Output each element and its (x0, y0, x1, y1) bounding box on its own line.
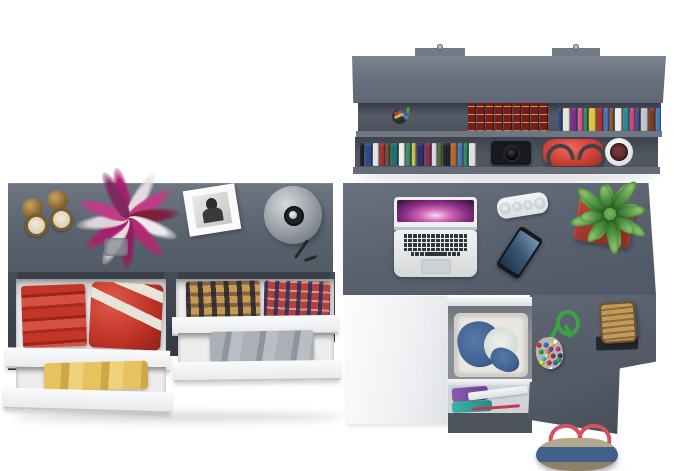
keyboard-key (413, 239, 417, 243)
book-spine (571, 108, 577, 131)
keyboard-key (431, 248, 435, 252)
bookshelf-bottom-edge (353, 167, 660, 174)
bookshelf-mount-tab (552, 48, 600, 57)
keyboard-key (441, 248, 445, 252)
book-spine (451, 143, 457, 166)
drawer-front (174, 360, 340, 382)
keyboard-key (418, 234, 422, 238)
keyboard-key (445, 248, 449, 252)
bookshelf-mount-tab (415, 48, 465, 57)
denim-tote-bag (536, 424, 622, 471)
bead (555, 357, 561, 363)
book-row-lower (360, 139, 476, 166)
keyboard-key (404, 239, 408, 243)
potpourri-bowl (605, 138, 633, 166)
wicker-basket (599, 301, 638, 344)
keyboard-key (454, 234, 458, 238)
keyboard-key (459, 234, 463, 238)
keyboard-key (431, 239, 435, 243)
bead (538, 349, 544, 355)
book-spine (636, 108, 640, 131)
book-row-upper (558, 103, 661, 131)
encyclopedia-set (468, 103, 548, 131)
keyboard-key (404, 248, 408, 252)
open-drawer-plaid (176, 279, 334, 319)
keyboard-key (420, 252, 424, 256)
speaker-driver (533, 196, 547, 210)
photo-frame (183, 183, 242, 237)
keyboard-key (422, 248, 426, 252)
bead (544, 353, 550, 359)
keyboard-key (450, 243, 454, 247)
keyboard-key (448, 252, 452, 256)
book-spine (417, 143, 424, 166)
plaid-shirt-red (264, 280, 331, 318)
book-spine (649, 108, 655, 131)
speaker-driver (498, 201, 512, 215)
book-spine (584, 108, 588, 131)
book-spine (464, 143, 468, 166)
book-spine (386, 143, 390, 166)
keyboard-key (436, 248, 440, 252)
laptop (394, 197, 477, 277)
bead (550, 353, 556, 359)
book-spine (563, 108, 570, 131)
keyboard-key (408, 243, 412, 247)
keyboard-row (402, 248, 469, 252)
keyboard-key (427, 234, 431, 238)
gray-clothes (210, 330, 315, 362)
laptop-trackpad (421, 259, 451, 274)
keyboard-key (445, 239, 449, 243)
drawer-front (4, 388, 172, 414)
book-spine (597, 108, 603, 131)
book-spine (469, 143, 476, 166)
book-spine (360, 143, 364, 166)
keyboard-key (415, 252, 419, 256)
keyboard-key (459, 248, 463, 252)
keyboard-key (418, 248, 422, 252)
book-spine (589, 108, 596, 131)
book-spine (641, 108, 648, 131)
encyclopedia-spine (468, 103, 476, 131)
keyboard-key (427, 248, 431, 252)
book-spine (615, 108, 622, 131)
keyboard-key (427, 243, 431, 247)
keyboard-key (459, 243, 463, 247)
book-spine (443, 143, 450, 166)
encyclopedia-spine (540, 103, 548, 131)
book-spine (380, 143, 385, 166)
book-spine (425, 143, 431, 166)
encyclopedia-spine (522, 103, 530, 131)
encyclopedia-spine (531, 103, 539, 131)
keyboard-key (436, 234, 440, 238)
keyboard-key (452, 252, 456, 256)
drawer-rail (448, 297, 532, 306)
keyboard-row (402, 234, 469, 238)
book-spine (365, 143, 372, 166)
encyclopedia-spine (504, 103, 512, 131)
keyboard-key (436, 239, 440, 243)
keyboard-key (413, 234, 417, 238)
succulent-plant (568, 178, 652, 244)
encyclopedia-spine (477, 103, 485, 131)
potpourri (610, 143, 628, 161)
bead (539, 360, 545, 366)
keyboard-key (450, 239, 454, 243)
keyboard-key (404, 234, 408, 238)
yellow-clothes (44, 361, 149, 392)
lamp-finial (289, 211, 297, 219)
keyboard-key (436, 243, 440, 247)
book-spine (610, 108, 614, 131)
red-handbag (543, 139, 603, 167)
keyboard-row (402, 252, 469, 256)
keyboard-key (408, 234, 412, 238)
keyboard-key (445, 234, 449, 238)
portrait-shoulders (202, 206, 224, 223)
book-spine (458, 143, 463, 166)
screw-icon (573, 44, 579, 50)
book-spine (406, 143, 411, 166)
keyboard-key (464, 248, 468, 252)
keyboard-key (464, 239, 468, 243)
keyboard-key (445, 243, 449, 247)
dresser-shadow (12, 412, 342, 422)
keyboard-key (408, 239, 412, 243)
keyboard-key (441, 239, 445, 243)
keyboard-key (408, 248, 412, 252)
laptop-base (394, 230, 477, 277)
furniture-render-scene: Top-down 3D render of a dark gray home o… (0, 0, 700, 471)
book-spine (623, 108, 629, 131)
book-spine (412, 143, 416, 166)
laptop-lid (394, 197, 477, 227)
plaid-shirt-tan (186, 280, 261, 318)
bookshelf-upper-shelf (358, 103, 661, 131)
book-spine (432, 143, 437, 166)
book-spine (438, 143, 442, 166)
keyboard-key (441, 234, 445, 238)
laptop-screen (397, 200, 474, 222)
keyboard-key (454, 243, 458, 247)
under-desk-drawer (448, 297, 532, 379)
speaker-driver (522, 199, 533, 210)
keyboard-key (422, 234, 426, 238)
portrait-photo (192, 191, 233, 228)
tote-body (536, 438, 618, 471)
flower-bouquet (58, 166, 198, 262)
book-spine (578, 108, 583, 131)
camera (491, 141, 531, 165)
book-spine (399, 143, 405, 166)
book-spine (373, 143, 379, 166)
book-spine (558, 108, 562, 131)
keyboard-key (454, 248, 458, 252)
red-white-garment (88, 281, 163, 351)
keyboard-key (450, 234, 454, 238)
keyboard-key (459, 239, 463, 243)
red-towels (21, 284, 87, 348)
keyboard-key (418, 243, 422, 247)
book-spine (604, 108, 609, 131)
keyboard-key (422, 243, 426, 247)
keyboard-key (441, 243, 445, 247)
keyboard-key (454, 239, 458, 243)
keyboard-key (431, 234, 435, 238)
bead (552, 339, 558, 345)
book-spine (630, 108, 635, 131)
keyboard-key (404, 243, 408, 247)
camera-lens (503, 145, 520, 162)
flower-vase (104, 238, 128, 256)
keyboard-key (413, 243, 417, 247)
bead (546, 360, 552, 366)
pen-cluster (388, 105, 414, 127)
open-drawer-towels (16, 279, 166, 351)
table-lamp (264, 186, 322, 244)
keyboard-key (418, 239, 422, 243)
keyboard-key (425, 252, 447, 256)
keyboard-key (464, 243, 468, 247)
bead (548, 346, 554, 352)
keyboard-row (402, 239, 469, 243)
screw-icon (437, 44, 443, 50)
laundry-basket (454, 313, 528, 377)
bookshelf-top-slab (352, 56, 666, 103)
keyboard-key (457, 252, 461, 256)
book-spine (391, 143, 398, 166)
keyboard-key (450, 248, 454, 252)
shelf-lower-band (448, 413, 532, 433)
keyboard-key (431, 243, 435, 247)
keyboard-key (413, 248, 417, 252)
keyboard-key (422, 239, 426, 243)
encyclopedia-spine (513, 103, 521, 131)
under-desk-panel (345, 296, 447, 424)
keyboard-key (464, 234, 468, 238)
keyboard-row (402, 243, 469, 247)
speaker-driver (511, 201, 522, 212)
encyclopedia-spine (486, 103, 494, 131)
keyboard-key (427, 239, 431, 243)
bead (536, 342, 542, 348)
laptop-keyboard (402, 234, 469, 256)
keyboard-key (411, 252, 415, 256)
bead (555, 346, 561, 352)
bookshelf-lower-shelf (355, 137, 658, 167)
encyclopedia-spine (495, 103, 503, 131)
candle (25, 214, 48, 237)
book-spine (656, 108, 661, 131)
under-desk-shelf (448, 379, 532, 415)
